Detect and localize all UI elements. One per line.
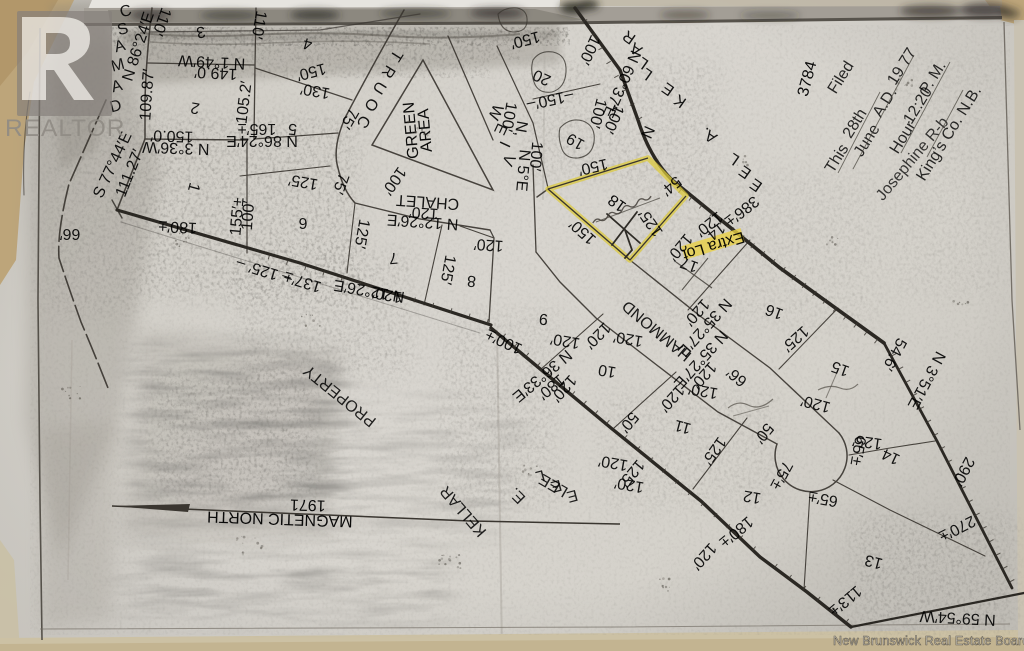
svg-text:180′±: 180′±: [158, 217, 198, 236]
svg-text:120′: 120′: [473, 235, 504, 254]
svg-text:1971: 1971: [290, 495, 326, 513]
svg-text:REALTOR: REALTOR: [5, 115, 125, 142]
svg-text:New Brunswick Real Estate Boar: New Brunswick Real Estate Board: [833, 634, 1024, 648]
svg-text:12: 12: [742, 486, 763, 506]
svg-text:N 86°24′E: N 86°24′E: [226, 132, 298, 149]
svg-text:100′: 100′: [526, 141, 546, 172]
svg-text:8: 8: [466, 272, 476, 290]
svg-text:N 3°36′W: N 3°36′W: [141, 138, 210, 157]
svg-text:N 1°49′W: N 1°49′W: [177, 51, 246, 72]
svg-text:N,: N,: [511, 119, 531, 138]
svg-text:7: 7: [388, 249, 398, 267]
svg-text:109.87′: 109.87′: [137, 68, 158, 121]
svg-text:9: 9: [538, 310, 548, 328]
svg-text:6: 6: [298, 214, 307, 231]
svg-text:66′: 66′: [60, 225, 81, 242]
svg-text:100′: 100′: [239, 200, 259, 231]
svg-text:10: 10: [597, 360, 618, 380]
